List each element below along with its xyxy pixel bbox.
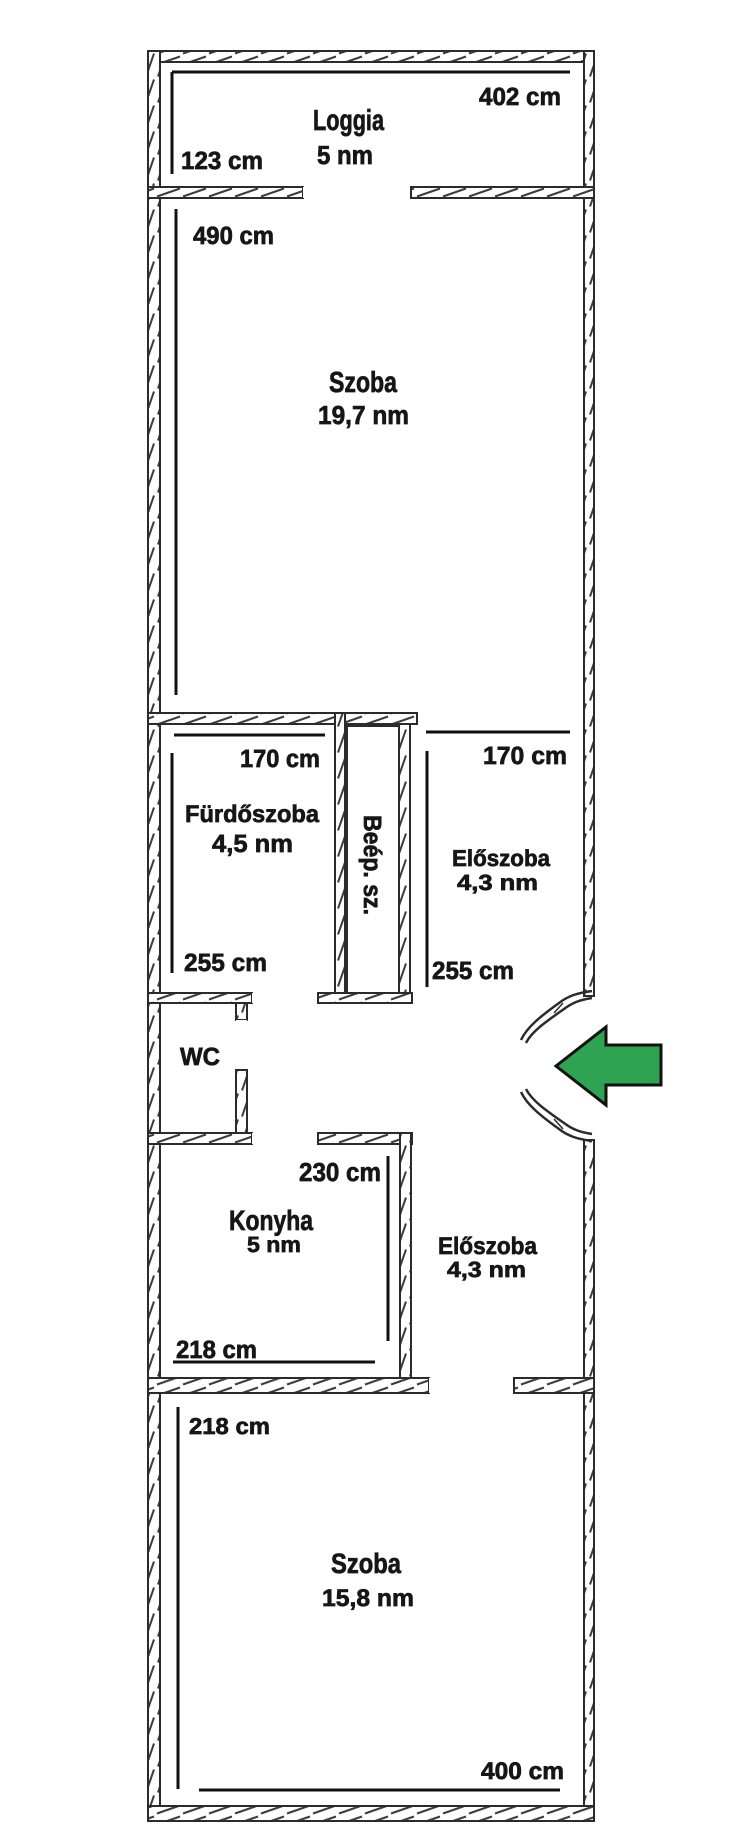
svg-text:4,3 nm: 4,3 nm <box>447 1257 526 1282</box>
svg-text:170 cm: 170 cm <box>483 742 567 770</box>
svg-text:5 nm: 5 nm <box>247 1232 301 1257</box>
svg-text:Loggia: Loggia <box>313 105 385 137</box>
svg-text:Szoba: Szoba <box>331 1548 401 1579</box>
svg-text:Előszoba: Előszoba <box>438 1233 538 1260</box>
svg-text:218 cm: 218 cm <box>176 1336 257 1364</box>
svg-text:19,7 nm: 19,7 nm <box>318 400 409 430</box>
svg-text:15,8 nm: 15,8 nm <box>322 1585 414 1612</box>
svg-text:Szoba: Szoba <box>329 367 398 399</box>
svg-text:218 cm: 218 cm <box>189 1413 270 1439</box>
svg-text:170 cm: 170 cm <box>240 745 320 773</box>
svg-text:5 nm: 5 nm <box>317 140 373 170</box>
svg-text:400 cm: 400 cm <box>481 1758 564 1785</box>
svg-text:402 cm: 402 cm <box>479 83 561 111</box>
svg-text:230 cm: 230 cm <box>299 1157 381 1187</box>
svg-text:4,5 nm: 4,5 nm <box>212 830 293 858</box>
svg-text:123 cm: 123 cm <box>181 147 263 175</box>
svg-text:WC: WC <box>180 1043 220 1071</box>
svg-text:Előszoba: Előszoba <box>452 845 550 871</box>
svg-text:255 cm: 255 cm <box>184 949 267 977</box>
svg-text:Fürdőszoba: Fürdőszoba <box>185 801 320 828</box>
svg-text:490 cm: 490 cm <box>193 222 274 250</box>
svg-text:Beép. sz.: Beép. sz. <box>358 815 386 915</box>
svg-text:255 cm: 255 cm <box>432 957 514 985</box>
svg-text:4,3 nm: 4,3 nm <box>457 870 538 895</box>
